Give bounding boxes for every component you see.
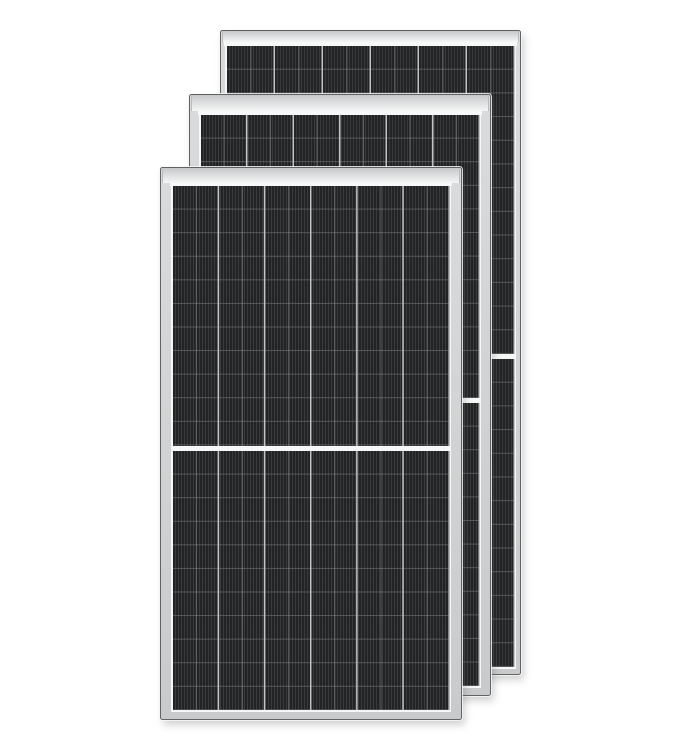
panel-cells-lower-half <box>173 451 450 711</box>
product-image <box>0 0 684 748</box>
panel-cells-upper-half <box>173 186 450 446</box>
panel-laminate <box>171 186 451 712</box>
panel-top-rail <box>191 95 489 111</box>
panel-top-rail <box>162 168 460 183</box>
solar-panel-front <box>160 167 462 720</box>
panel-top-rail <box>222 31 519 42</box>
